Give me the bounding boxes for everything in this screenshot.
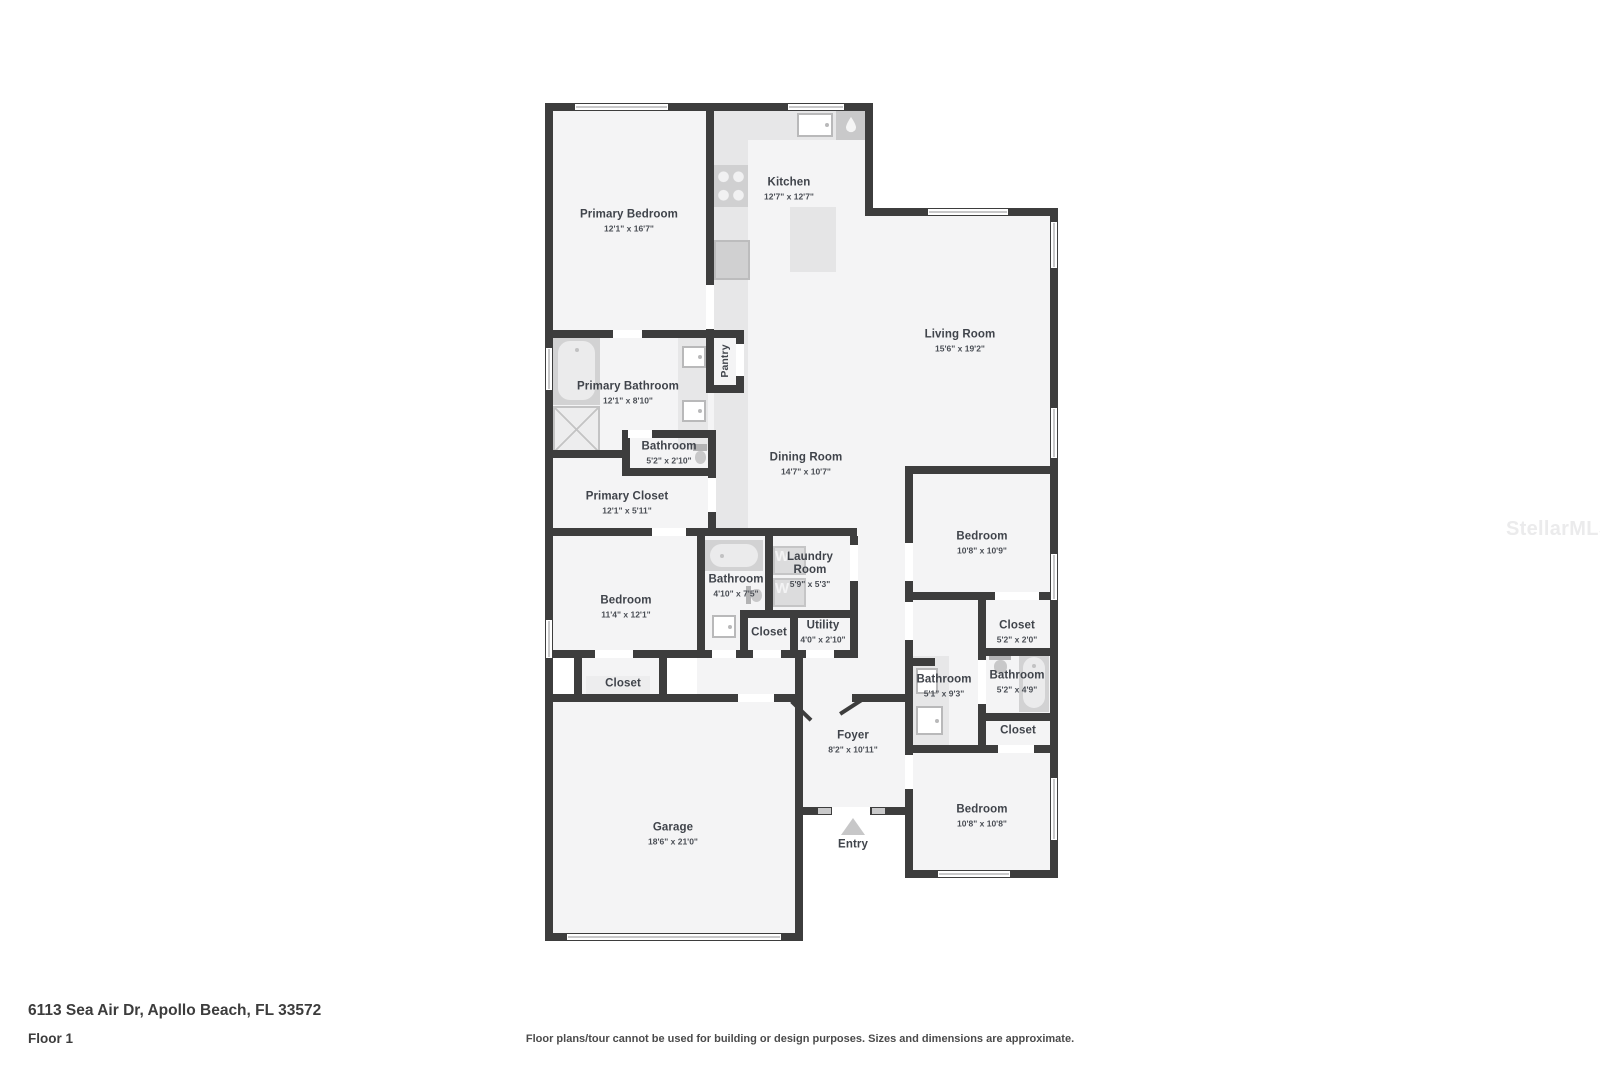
wall <box>795 656 803 941</box>
door-opening <box>753 650 781 658</box>
shower-icon <box>553 406 600 453</box>
window <box>938 871 1010 877</box>
wall <box>622 468 716 476</box>
room-label-foyer: Foyer 8'2" x 10'11" <box>828 729 877 754</box>
room-name: Bathroom <box>989 669 1044 682</box>
door-opening <box>978 660 986 704</box>
door-opening <box>998 745 1034 753</box>
room-name: Bathroom <box>708 573 763 586</box>
floor-garage <box>553 702 796 934</box>
floor-hall <box>697 658 804 694</box>
room-name: Closet <box>605 677 641 690</box>
room-dims: 10'8" x 10'9" <box>956 546 1007 556</box>
room-name: Garage <box>648 821 698 834</box>
room-dims: 12'1" x 16'7" <box>580 224 678 234</box>
door-opening <box>652 528 686 536</box>
room-label-primary-closet: Primary Closet 12'1" x 5'11" <box>586 490 669 515</box>
entry-sidelight <box>818 808 831 814</box>
room-name: Primary Bedroom <box>580 208 678 221</box>
room-name: Pantry <box>719 344 731 377</box>
room-name: Primary Closet <box>586 490 669 503</box>
watermark: StellarMLS <box>1506 518 1600 541</box>
kitchen-sink-icon <box>797 113 833 137</box>
door-opening <box>706 285 714 329</box>
disclaimer-text: Floor plans/tour cannot be used for buil… <box>526 1033 1074 1045</box>
room-label-primary-bedroom: Primary Bedroom 12'1" x 16'7" <box>580 208 678 233</box>
window <box>575 104 668 110</box>
back-bath-sink-icon <box>916 706 943 735</box>
door-opening <box>905 602 913 640</box>
room-dims: 12'1" x 8'10" <box>577 396 679 406</box>
wall <box>978 713 1058 721</box>
room-name: Entry <box>838 838 868 851</box>
room-dims: 10'8" x 10'8" <box>956 819 1007 829</box>
room-dims: 5'1" x 9'3" <box>916 689 971 699</box>
room-dims: 12'1" x 5'11" <box>586 506 669 516</box>
garage-door <box>567 934 781 940</box>
room-name: Bedroom <box>956 803 1007 816</box>
wall <box>740 610 858 618</box>
room-dims: 8'2" x 10'11" <box>828 745 877 755</box>
door-opening <box>806 650 834 658</box>
floor-living-dining <box>706 216 1058 467</box>
window <box>546 348 552 390</box>
room-label-ensuite-closet: Closet <box>1000 724 1036 737</box>
room-label-pantry: Pantry <box>719 344 731 377</box>
room-label-bedroom-left: Bedroom 11'4" x 12'1" <box>600 594 651 619</box>
kitchen-island <box>790 207 836 272</box>
wall <box>659 650 667 700</box>
room-dims: 11'4" x 12'1" <box>600 610 651 620</box>
wall <box>765 536 773 618</box>
room-name: Primary Bathroom <box>577 380 679 393</box>
dishwasher-icon <box>836 111 866 140</box>
door-opening <box>613 330 642 338</box>
room-label-garage: Garage 18'6" x 21'0" <box>648 821 698 846</box>
room-dims: 5'2" x 2'10" <box>641 456 696 466</box>
hall-tub-basin <box>710 544 758 567</box>
door-opening <box>850 545 858 581</box>
door-opening <box>905 755 913 789</box>
wall <box>697 536 705 658</box>
window <box>1051 408 1057 458</box>
room-dims: 15'6" x 19'2" <box>925 344 996 354</box>
room-label-dining-room: Dining Room 14'7" x 10'7" <box>770 451 843 476</box>
floor-label: Floor 1 <box>28 1031 73 1046</box>
wall <box>706 103 714 393</box>
room-name: Closet <box>751 626 787 639</box>
door-opening <box>995 592 1039 600</box>
door-opening <box>708 478 716 512</box>
room-dims: 14'7" x 10'7" <box>770 467 843 477</box>
wall <box>790 610 798 658</box>
door-opening <box>712 650 736 658</box>
hall-bath-sink-icon <box>712 615 736 638</box>
room-name: Laundry Room <box>779 551 841 577</box>
wc-toilet-bowl-icon <box>695 451 706 464</box>
room-label-primary-bathroom: Primary Bathroom 12'1" x 8'10" <box>577 380 679 405</box>
wall <box>978 648 1058 656</box>
room-name: Foyer <box>828 729 877 742</box>
door-opening <box>628 430 652 438</box>
entry-door-opening <box>832 807 870 815</box>
door-opening <box>905 543 913 581</box>
address-title: 6113 Sea Air Dr, Apollo Beach, FL 33572 <box>28 1002 321 1020</box>
entry-sidelight <box>872 808 885 814</box>
door-opening <box>738 694 774 702</box>
room-name: Bedroom <box>956 530 1007 543</box>
room-label-bedroom-closet: Closet <box>605 677 641 690</box>
room-label-bedroom-front: Bedroom 10'8" x 10'8" <box>956 803 1007 828</box>
room-dims: 18'6" x 21'0" <box>648 837 698 847</box>
room-label-hall-closet: Closet <box>751 626 787 639</box>
room-label-living-room: Living Room 15'6" x 19'2" <box>925 328 996 353</box>
floor-plan: W W <box>0 0 1600 1066</box>
refrigerator-icon <box>714 240 750 280</box>
room-label-hall-bathroom: Bathroom 4'10" x 7'5" <box>708 573 763 598</box>
wall <box>545 450 630 458</box>
room-dims: 12'7" x 12'7" <box>764 192 814 202</box>
room-label-bathroom-ensuite: Bathroom 5'2" x 4'9" <box>989 669 1044 694</box>
stove-icon <box>714 165 748 207</box>
window <box>1051 554 1057 600</box>
room-label-kitchen: Kitchen 12'7" x 12'7" <box>764 176 814 201</box>
room-name: Closet <box>997 619 1037 632</box>
room-name: Bathroom <box>916 673 971 686</box>
window <box>928 209 1008 215</box>
wall <box>545 103 553 941</box>
room-name: Utility <box>800 619 845 632</box>
room-name: Kitchen <box>764 176 814 189</box>
room-dims: 5'2" x 4'9" <box>989 685 1044 695</box>
window <box>546 620 552 658</box>
room-label-bedroom-back: Bedroom 10'8" x 10'9" <box>956 530 1007 555</box>
wall <box>545 528 857 536</box>
vanity-sink-icon <box>682 346 706 368</box>
door-opening <box>736 344 744 376</box>
room-name: Bedroom <box>600 594 651 607</box>
window <box>1051 222 1057 268</box>
room-label-bathroom-back: Bathroom 5'1" x 9'3" <box>916 673 971 698</box>
room-label-back-closet: Closet 5'2" x 2'0" <box>997 619 1037 644</box>
window <box>788 104 844 110</box>
room-name: Bathroom <box>641 440 696 453</box>
window <box>1051 778 1057 840</box>
room-dims: 5'9" x 5'3" <box>779 579 841 589</box>
vanity-sink2-icon <box>682 400 706 422</box>
wall <box>865 103 873 216</box>
wall <box>545 330 744 338</box>
entry-arrow-icon <box>841 818 865 835</box>
wall <box>905 466 1058 474</box>
room-name: Dining Room <box>770 451 843 464</box>
door-opening <box>595 650 633 658</box>
wall <box>740 610 748 658</box>
room-label-water-closet: Bathroom 5'2" x 2'10" <box>641 440 696 465</box>
room-dims: 4'10" x 7'5" <box>708 589 763 599</box>
wall <box>574 650 582 700</box>
room-name: Living Room <box>925 328 996 341</box>
room-dims: 4'0" x 2'10" <box>800 635 845 645</box>
room-name: Closet <box>1000 724 1036 737</box>
room-label-utility: Utility 4'0" x 2'10" <box>800 619 845 644</box>
room-label-laundry-room: Laundry Room 5'9" x 5'3" <box>779 551 841 589</box>
room-label-entry: Entry <box>838 838 868 851</box>
room-dims: 5'2" x 2'0" <box>997 635 1037 645</box>
